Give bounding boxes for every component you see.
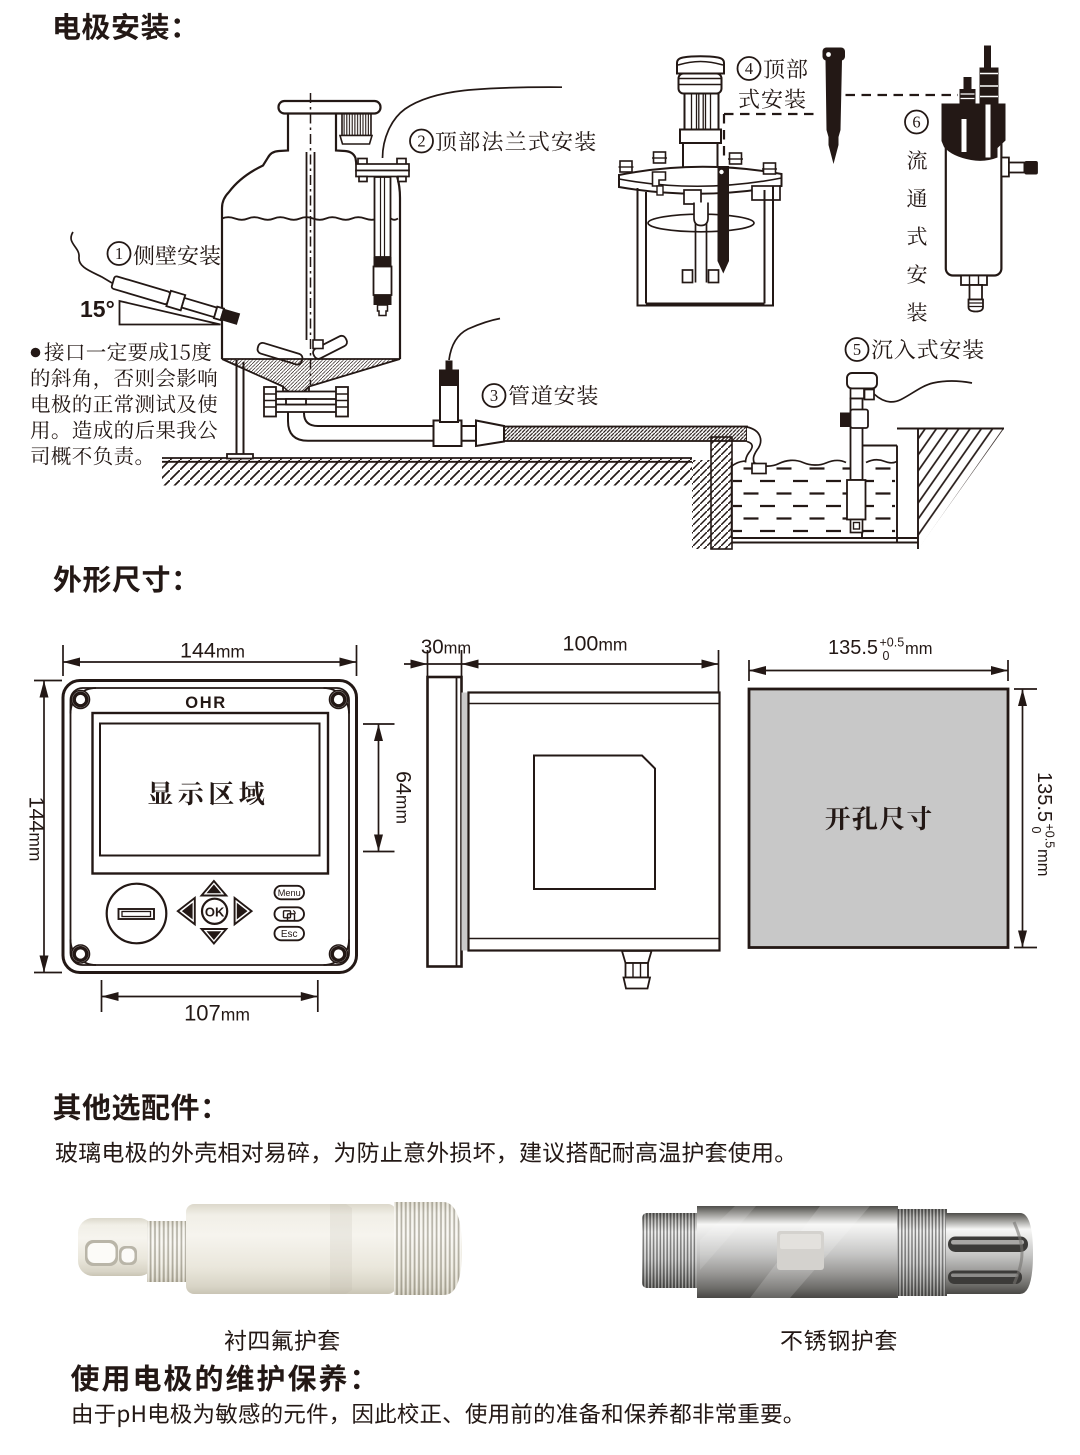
svg-text:Menu: Menu (278, 888, 301, 898)
svg-text:OK: OK (205, 904, 225, 919)
svg-text:144mm: 144mm (180, 639, 245, 663)
svg-text:5: 5 (853, 340, 861, 359)
svg-text:OHR: OHR (185, 694, 226, 712)
svg-text:+0.5: +0.5 (1043, 824, 1057, 849)
svg-text:15°: 15° (80, 296, 115, 322)
svg-text:0: 0 (1029, 827, 1043, 834)
svg-text:100mm: 100mm (562, 632, 627, 656)
svg-text:6: 6 (912, 113, 920, 132)
svg-text:107mm: 107mm (184, 1001, 250, 1026)
svg-text:2: 2 (417, 132, 425, 151)
svg-text:30mm: 30mm (421, 636, 471, 659)
svg-text:135.5: 135.5 (828, 637, 878, 659)
svg-text:0: 0 (883, 649, 890, 663)
svg-text:144mm: 144mm (25, 796, 49, 861)
svg-text:mm: mm (905, 640, 933, 658)
svg-text:4: 4 (745, 59, 753, 78)
svg-text:+0.5: +0.5 (880, 636, 905, 650)
svg-text:1: 1 (115, 244, 123, 263)
svg-text:mm: mm (1034, 849, 1052, 877)
svg-text:64mm: 64mm (392, 771, 416, 824)
svg-text:135.5: 135.5 (1033, 772, 1055, 822)
svg-text:3: 3 (490, 386, 498, 405)
svg-text:Esc: Esc (281, 929, 298, 940)
